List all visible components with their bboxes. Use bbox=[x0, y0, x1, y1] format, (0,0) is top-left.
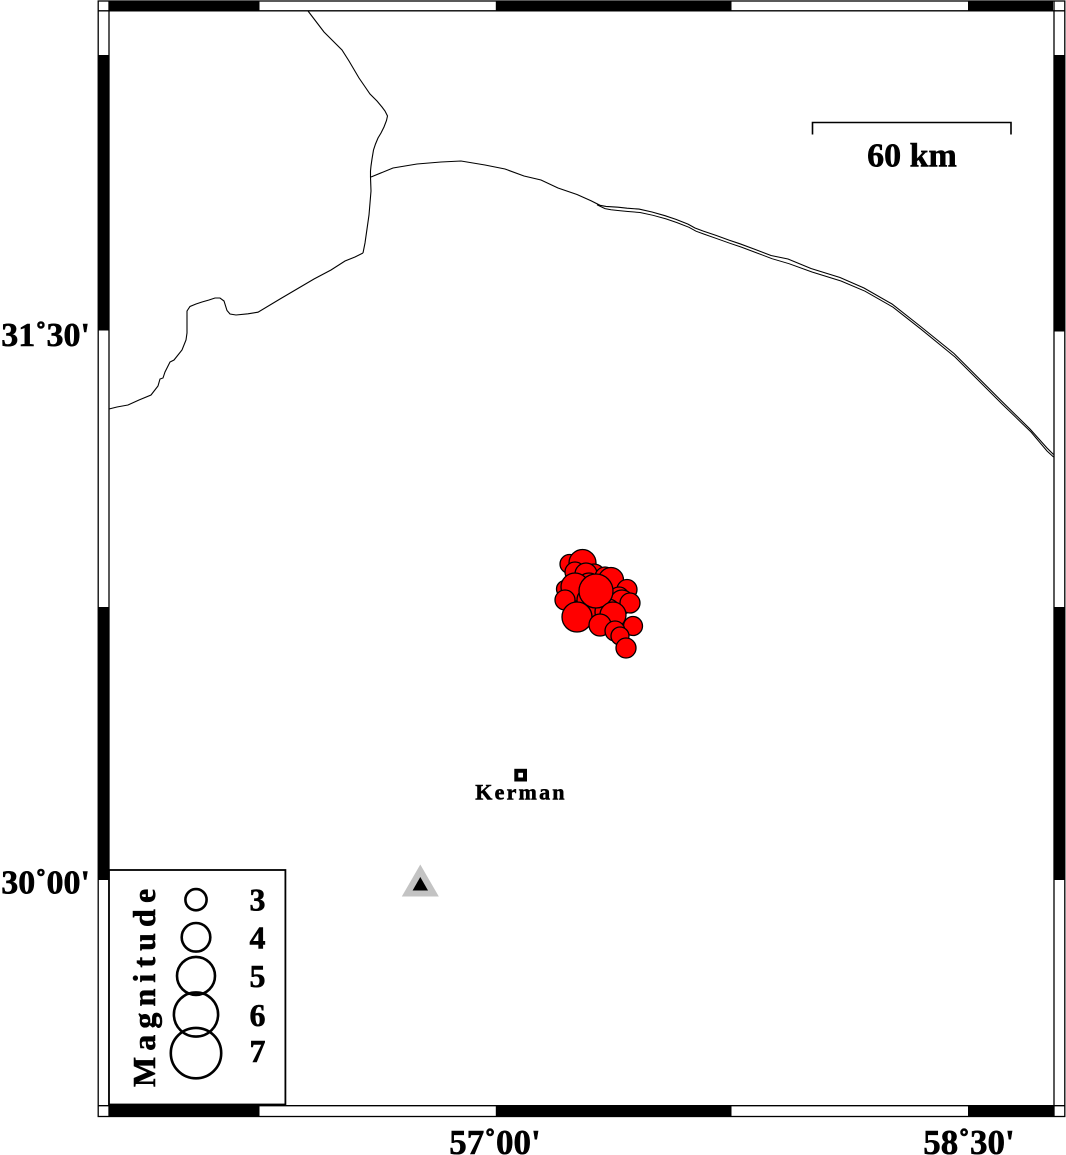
svg-text:5: 5 bbox=[250, 958, 266, 994]
svg-text:Kerman: Kerman bbox=[475, 780, 566, 805]
svg-text:4: 4 bbox=[250, 920, 266, 956]
svg-text:3: 3 bbox=[250, 882, 266, 918]
svg-text:60 km: 60 km bbox=[867, 138, 957, 175]
svg-text:7: 7 bbox=[250, 1033, 266, 1069]
svg-text:6: 6 bbox=[250, 997, 266, 1033]
svg-text:57˚00': 57˚00' bbox=[449, 1123, 540, 1155]
svg-text:Magnitude: Magnitude bbox=[126, 883, 162, 1087]
svg-text:58˚30': 58˚30' bbox=[923, 1123, 1014, 1155]
svg-text:31˚30': 31˚30' bbox=[1, 317, 90, 354]
svg-text:30˚00': 30˚00' bbox=[1, 865, 90, 902]
